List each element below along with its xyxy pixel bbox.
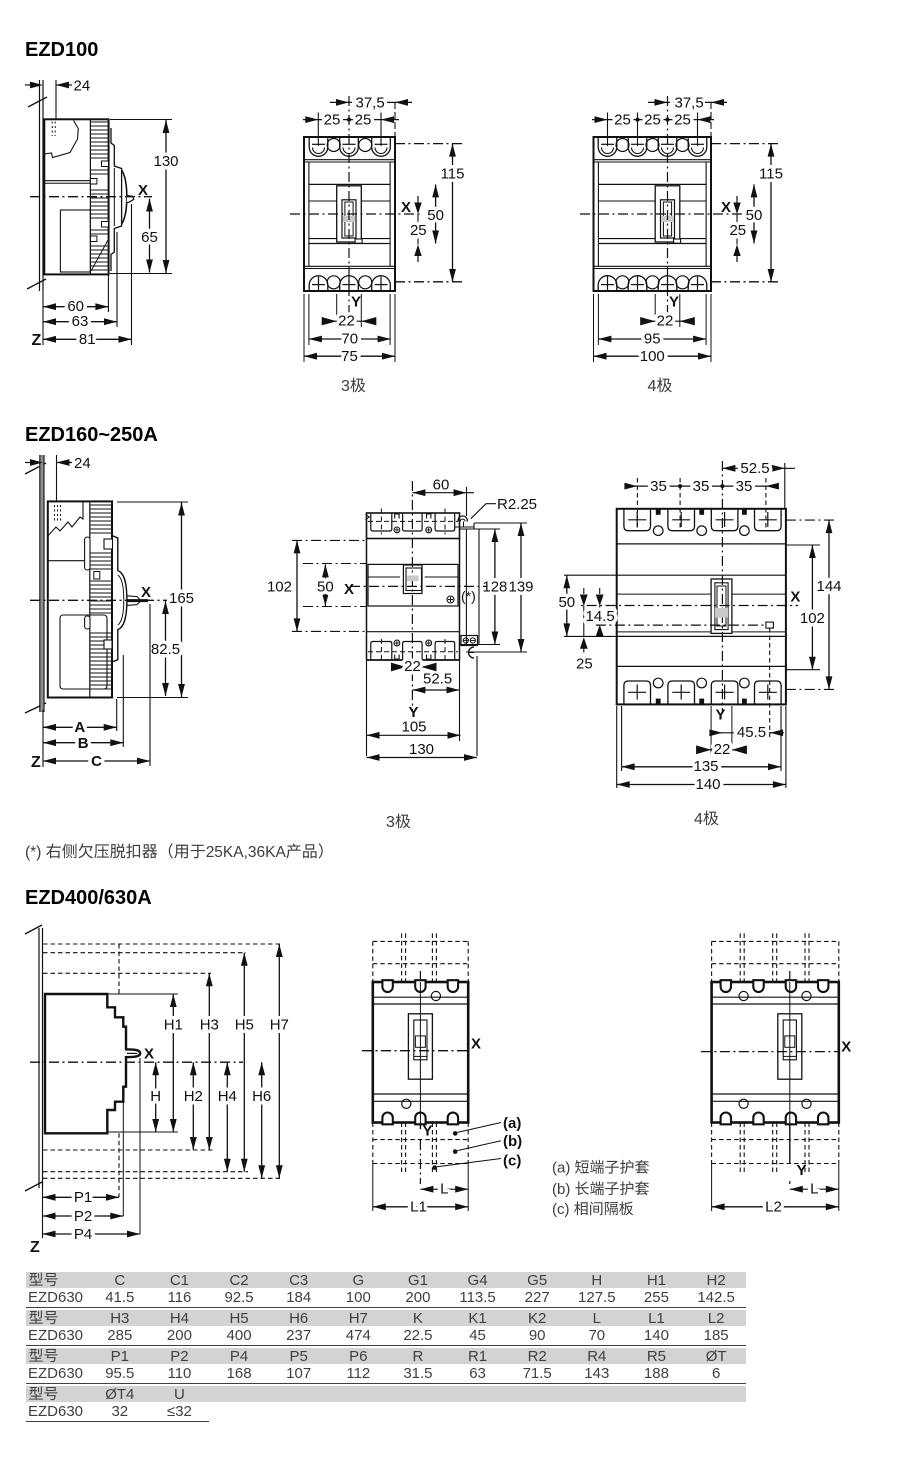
svg-text:25: 25 (576, 656, 593, 673)
svg-text:R2.25: R2.25 (497, 496, 537, 513)
svg-text:EZD160~250A: EZD160~250A (25, 424, 158, 446)
svg-text:3: 3 (341, 378, 350, 395)
svg-text:139: 139 (508, 579, 533, 596)
svg-text:H6: H6 (252, 1088, 271, 1105)
svg-text:144: 144 (816, 578, 841, 595)
svg-text:(b): (b) (552, 1181, 570, 1198)
svg-text:25KA,36KA: 25KA,36KA (206, 844, 287, 861)
svg-text:25: 25 (614, 112, 631, 129)
svg-text:P4: P4 (74, 1226, 92, 1243)
svg-text:H: H (150, 1088, 161, 1105)
svg-text:X: X (344, 581, 354, 598)
svg-text:130: 130 (409, 741, 434, 758)
svg-text:(*): (*) (461, 588, 476, 604)
svg-text:(c): (c) (503, 1153, 521, 1170)
svg-text:50: 50 (317, 579, 334, 596)
svg-text:Y: Y (797, 1162, 807, 1179)
svg-text:140: 140 (695, 776, 720, 793)
svg-text:EZD100: EZD100 (25, 39, 98, 61)
svg-text:(c): (c) (552, 1201, 570, 1218)
svg-text:P1: P1 (74, 1189, 92, 1206)
svg-text:Z: Z (31, 754, 41, 771)
svg-text:C: C (91, 753, 102, 770)
svg-text:B: B (78, 735, 89, 752)
svg-text:L2: L2 (765, 1199, 782, 1216)
svg-text:22: 22 (657, 313, 674, 330)
svg-text:50: 50 (746, 207, 763, 224)
svg-text:14.5: 14.5 (586, 608, 615, 625)
svg-text:105: 105 (401, 719, 426, 736)
svg-text:22: 22 (338, 313, 355, 330)
svg-text:25: 25 (674, 112, 691, 129)
svg-text:35: 35 (650, 478, 667, 495)
svg-text:Y: Y (351, 294, 361, 311)
svg-text:X: X (141, 584, 151, 601)
svg-text:25: 25 (355, 112, 372, 129)
svg-text:X: X (790, 589, 800, 606)
svg-text:L: L (810, 1181, 818, 1198)
svg-text:P2: P2 (74, 1208, 92, 1225)
svg-text:X: X (841, 1039, 851, 1056)
svg-text:35: 35 (693, 478, 710, 495)
svg-text:35: 35 (736, 478, 753, 495)
svg-text:95: 95 (644, 331, 661, 348)
svg-text:H3: H3 (200, 1017, 219, 1034)
svg-text:115: 115 (441, 166, 465, 183)
svg-text:102: 102 (800, 610, 825, 627)
svg-text:115: 115 (759, 166, 783, 183)
svg-text:H5: H5 (235, 1017, 254, 1034)
svg-text:165: 165 (169, 590, 194, 607)
svg-text:81: 81 (79, 331, 96, 348)
svg-text:4: 4 (648, 378, 657, 395)
svg-text:25: 25 (644, 112, 661, 129)
svg-text:65: 65 (141, 229, 158, 246)
svg-text:X: X (138, 182, 148, 199)
svg-text:A: A (74, 719, 85, 736)
svg-text:70: 70 (341, 331, 358, 348)
svg-text:24: 24 (74, 78, 91, 95)
svg-text:82.5: 82.5 (151, 641, 180, 658)
svg-text:Y: Y (669, 294, 679, 311)
svg-text:50: 50 (427, 207, 444, 224)
svg-text:22: 22 (714, 741, 731, 758)
svg-text:4: 4 (694, 811, 703, 828)
svg-text:3: 3 (386, 814, 395, 831)
svg-text:25: 25 (324, 112, 341, 129)
svg-text:Y: Y (716, 707, 726, 724)
svg-text:(a): (a) (552, 1160, 570, 1177)
svg-text:25: 25 (410, 222, 427, 239)
svg-text:Y: Y (423, 1123, 433, 1140)
svg-text:EZD400/630A: EZD400/630A (25, 887, 152, 909)
svg-text:22: 22 (404, 658, 421, 675)
svg-text:H1: H1 (164, 1017, 183, 1034)
svg-text:52.5: 52.5 (423, 671, 452, 688)
svg-text:100: 100 (640, 348, 665, 365)
svg-text:H7: H7 (270, 1017, 289, 1034)
svg-text:H4: H4 (218, 1088, 237, 1105)
svg-text:45.5: 45.5 (737, 724, 766, 741)
svg-text:135: 135 (693, 758, 718, 775)
svg-text:25: 25 (729, 222, 746, 239)
svg-text:X: X (471, 1036, 481, 1053)
svg-text:75: 75 (341, 348, 358, 365)
svg-text:102: 102 (267, 579, 292, 596)
svg-text:(*): (*) (25, 844, 41, 861)
svg-text:H2: H2 (184, 1088, 203, 1105)
svg-text:L1: L1 (410, 1199, 427, 1216)
svg-text:37,5: 37,5 (356, 95, 385, 112)
svg-text:X: X (144, 1046, 154, 1063)
svg-text:52.5: 52.5 (740, 460, 769, 477)
svg-text:24: 24 (74, 455, 91, 472)
svg-text:37,5: 37,5 (675, 95, 704, 112)
svg-text:Z: Z (30, 1239, 40, 1256)
svg-text:(b): (b) (503, 1133, 522, 1150)
svg-text:(a): (a) (503, 1115, 521, 1132)
svg-text:60: 60 (433, 477, 450, 494)
svg-text:L: L (440, 1181, 448, 1198)
svg-text:Z: Z (32, 332, 42, 349)
svg-text:130: 130 (153, 153, 178, 170)
svg-text:50: 50 (558, 594, 575, 611)
svg-text:63: 63 (72, 313, 89, 330)
